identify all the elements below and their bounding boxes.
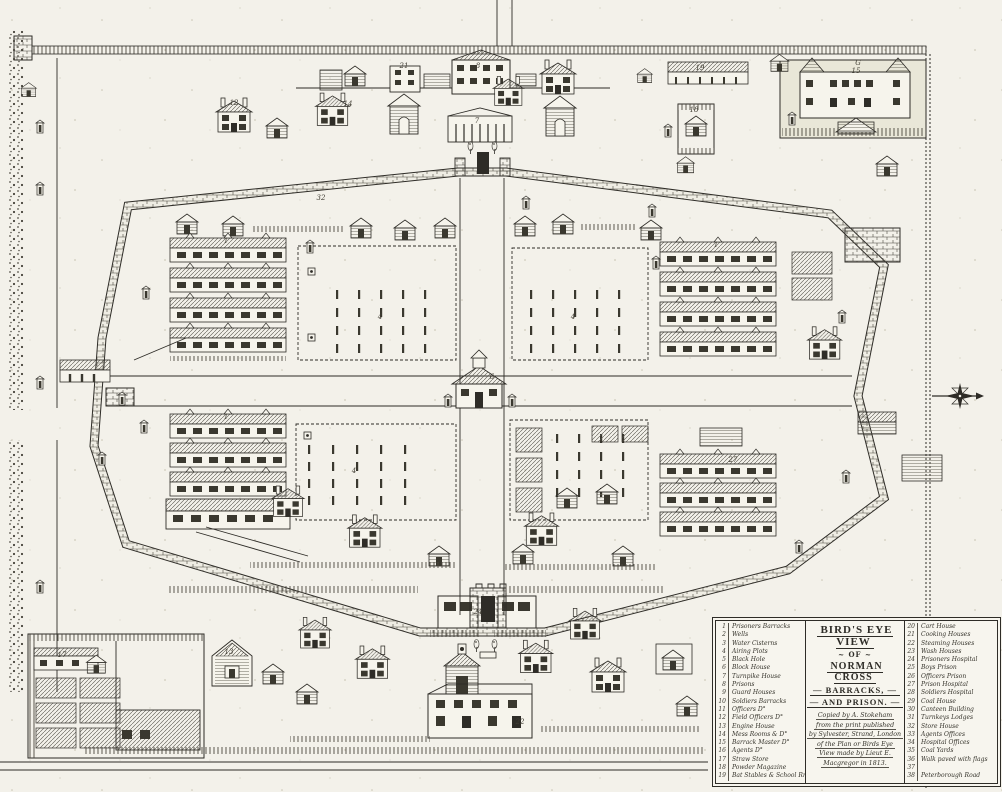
- legend-item: 35Coal Yards: [905, 747, 997, 755]
- legend-item-number: 12: [716, 714, 729, 722]
- legend-item-number: 25: [905, 664, 918, 672]
- legend-item-number: 4: [716, 648, 729, 656]
- legend-item: 29Coal House: [905, 698, 997, 706]
- legend-item-number: 10: [716, 698, 729, 706]
- legend-item: 24Prisoners Hospital: [905, 656, 997, 664]
- legend-item-label: Soldiers Hospital: [918, 689, 973, 697]
- legend-item-number: 26: [905, 673, 918, 681]
- legend-item-number: 22: [905, 640, 918, 648]
- legend-caption-line: of the Plan or Birds Eye: [806, 740, 904, 750]
- legend-caption-line: Macgregor in 1813.: [806, 759, 904, 769]
- legend-item: 20Cart House: [905, 623, 997, 631]
- legend-item: 8Prisons: [716, 681, 805, 689]
- legend-item-number: 19: [716, 772, 729, 780]
- legend-item-number: 20: [905, 623, 918, 631]
- legend-item-label: Black Hole: [729, 656, 765, 664]
- legend-item: 17Straw Store: [716, 756, 805, 764]
- legend-item: 12Field Officers D°: [716, 714, 805, 722]
- legend-item-number: 15: [716, 739, 729, 747]
- legend-item-number: 3: [716, 640, 729, 648]
- legend-item: 27Prison Hospital: [905, 681, 997, 689]
- legend-item-number: 30: [905, 706, 918, 714]
- legend-item: 23Wash Houses: [905, 648, 997, 656]
- legend-item: 1Prisoners Barracks: [716, 623, 805, 631]
- legend-caption-line: Copied by A. Stokeham: [806, 711, 904, 721]
- legend-item-number: 34: [905, 739, 918, 747]
- legend-item-label: Officers D°: [729, 706, 766, 714]
- legend-item-label: Cart House: [918, 623, 956, 631]
- legend-caption: Copied by A. Stokehamfrom the print publ…: [806, 711, 904, 768]
- legend-item: 18Powder Magazine: [716, 764, 805, 772]
- legend-item-number: 5: [716, 656, 729, 664]
- legend-item-label: Prison Hospital: [918, 681, 968, 689]
- legend-item-number: 38: [905, 772, 918, 780]
- legend-item: 10Soldiers Barracks: [716, 698, 805, 706]
- legend-item-number: 32: [905, 723, 918, 731]
- legend-item-label: Store House: [918, 723, 959, 731]
- legend-item-number: 6: [716, 664, 729, 672]
- legend-list-left: 1Prisoners Barracks2Wells3Water Cisterns…: [716, 621, 805, 783]
- legend-item-number: 24: [905, 656, 918, 664]
- legend-title-line: ~ OF ~: [806, 650, 904, 659]
- legend-caption-line: View made by Lieut E.: [806, 749, 904, 759]
- legend-item-label: Coal House: [918, 698, 956, 706]
- legend-item: 30Canteen Building: [905, 706, 997, 714]
- legend-item-label: Barrack Master D°: [729, 739, 790, 747]
- legend-caption-line: from the print published: [806, 721, 904, 731]
- legend-box: 1Prisoners Barracks2Wells3Water Cisterns…: [712, 617, 1001, 787]
- legend-item: 37: [905, 764, 997, 772]
- legend-item-number: 29: [905, 698, 918, 706]
- legend-item-label: Steaming Houses: [918, 640, 974, 648]
- legend-item-label: Agents Offices: [918, 731, 965, 739]
- legend-item-number: 2: [716, 631, 729, 639]
- legend-item-label: Canteen Building: [918, 706, 974, 714]
- legend-title-line: — BARRACKS, —: [806, 685, 904, 695]
- birds-eye-view-plan: 128714211918G153211446142724131722 1Pris…: [0, 0, 1002, 792]
- legend-item-label: Prisons: [729, 681, 754, 689]
- legend-item-number: 33: [905, 731, 918, 739]
- legend-item: 26Officers Prison: [905, 673, 997, 681]
- legend-list-right: 20Cart House21Cooking Houses22Steaming H…: [905, 621, 997, 783]
- legend-item-label: Prisoners Barracks: [729, 623, 790, 631]
- legend-item-label: Powder Magazine: [729, 764, 786, 772]
- legend-item: 32Store House: [905, 723, 997, 731]
- legend-item: 14Mess Rooms & D°: [716, 731, 805, 739]
- legend-item-label: Straw Store: [729, 756, 769, 764]
- legend-item: 33Agents Offices: [905, 731, 997, 739]
- legend-item-label: Turnpike House: [729, 673, 781, 681]
- legend-item-label: Wash Houses: [918, 648, 962, 656]
- legend-item-number: 21: [905, 631, 918, 639]
- legend-item-number: 35: [905, 747, 918, 755]
- legend-title: BIRD'S EYE VIEW~ OF ~NORMAN CROSS— BARRA…: [806, 624, 904, 707]
- legend-item-number: 16: [716, 747, 729, 755]
- legend-item: 28Soldiers Hospital: [905, 689, 997, 697]
- legend-item-label: Peterborough Road: [918, 772, 980, 780]
- legend-item-label: Walk paved with flags: [918, 756, 988, 764]
- legend-item-number: 28: [905, 689, 918, 697]
- legend-item-label: Bat Stables & School Rm: [729, 772, 805, 780]
- legend-item: 4Airing Plots: [716, 648, 805, 656]
- legend-item-label: Hospital Offices: [918, 739, 970, 747]
- legend-item-label: Soldiers Barracks: [729, 698, 786, 706]
- legend-item-number: 18: [716, 764, 729, 772]
- legend-item-label: Cooking Houses: [918, 631, 970, 639]
- legend-item: 34Hospital Offices: [905, 739, 997, 747]
- legend-item: 25Boys Prison: [905, 664, 997, 672]
- legend-item-label: Wells: [729, 631, 748, 639]
- legend-title-block: BIRD'S EYE VIEW~ OF ~NORMAN CROSS— BARRA…: [805, 621, 905, 783]
- legend-item: 7Turnpike House: [716, 673, 805, 681]
- legend-item: 31Turnkeys Lodges: [905, 714, 997, 722]
- legend-item-number: 1: [716, 623, 729, 631]
- legend-item-label: Block House: [729, 664, 770, 672]
- legend-item-label: Guard Houses: [729, 689, 775, 697]
- legend-item-number: 7: [716, 673, 729, 681]
- legend-item-label: Officers Prison: [918, 673, 966, 681]
- legend-item-number: 27: [905, 681, 918, 689]
- legend-item-label: Mess Rooms & D°: [729, 731, 787, 739]
- legend-item-label: Prisoners Hospital: [918, 656, 977, 664]
- legend-item-number: 8: [716, 681, 729, 689]
- legend-item-number: 31: [905, 714, 918, 722]
- legend-item: 3Water Cisterns: [716, 640, 805, 648]
- legend-item-label: Turnkeys Lodges: [918, 714, 973, 722]
- legend-item: 15Barrack Master D°: [716, 739, 805, 747]
- legend-item-number: 37: [905, 764, 918, 772]
- legend-item-label: Coal Yards: [918, 747, 953, 755]
- legend-item-number: 13: [716, 723, 729, 731]
- legend-item: 13Engine House: [716, 723, 805, 731]
- legend-item: 6Block House: [716, 664, 805, 672]
- legend-item: 5Black Hole: [716, 656, 805, 664]
- legend-frame: 1Prisoners Barracks2Wells3Water Cisterns…: [715, 620, 998, 784]
- legend-title-line: — AND PRISON. —: [806, 697, 904, 707]
- legend-item: 38Peterborough Road: [905, 772, 997, 780]
- legend-item-number: 36: [905, 756, 918, 764]
- legend-item: 11Officers D°: [716, 706, 805, 714]
- legend-item-number: 9: [716, 689, 729, 697]
- legend-item-number: 23: [905, 648, 918, 656]
- legend-item: 2Wells: [716, 631, 805, 639]
- legend-title-line: NORMAN CROSS: [806, 661, 904, 683]
- legend-item: 21Cooking Houses: [905, 631, 997, 639]
- legend-title-line: BIRD'S EYE VIEW: [806, 624, 904, 648]
- legend-item-label: Field Officers D°: [729, 714, 783, 722]
- legend-item: 16Agents D°: [716, 747, 805, 755]
- legend-caption-line: by Sylvester, Strand, London: [806, 730, 904, 740]
- legend-item-number: 11: [716, 706, 729, 714]
- legend-item-label: Water Cisterns: [729, 640, 777, 648]
- legend-item-label: Engine House: [729, 723, 775, 731]
- legend-item: 36Walk paved with flags: [905, 756, 997, 764]
- legend-item-number: 17: [716, 756, 729, 764]
- legend-item: 22Steaming Houses: [905, 640, 997, 648]
- legend-item: 19Bat Stables & School Rm: [716, 772, 805, 780]
- legend-item-label: Airing Plots: [729, 648, 768, 656]
- legend-item-label: [918, 764, 921, 772]
- legend-item: 9Guard Houses: [716, 689, 805, 697]
- legend-item-label: Agents D°: [729, 747, 763, 755]
- legend-item-label: Boys Prison: [918, 664, 957, 672]
- legend-item-number: 14: [716, 731, 729, 739]
